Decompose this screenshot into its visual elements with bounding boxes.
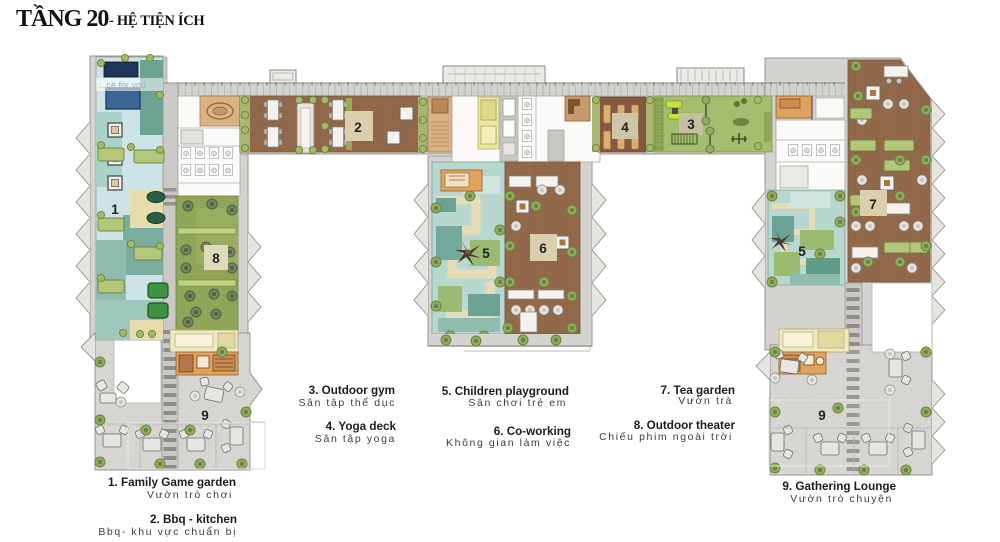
- svg-text:9: 9: [818, 408, 826, 423]
- svg-text:9. Gathering Lounge: 9. Gathering Lounge: [782, 480, 896, 493]
- svg-text:7: 7: [869, 197, 877, 212]
- svg-text:1. Family Game garden: 1. Family Game garden: [108, 476, 236, 489]
- svg-text:Chiếu phim ngoài trời: Chiếu phim ngoài trời: [599, 431, 733, 443]
- svg-text:Sân chơi trẻ em: Sân chơi trẻ em: [468, 397, 567, 409]
- svg-text:Không gian làm việc: Không gian làm việc: [446, 437, 571, 449]
- svg-text:2. Bbq - kitchen: 2. Bbq - kitchen: [150, 513, 237, 526]
- svg-text:4: 4: [621, 120, 629, 135]
- svg-text:Vườn trà: Vườn trà: [678, 395, 733, 407]
- svg-text:Sân tập yoga: Sân tập yoga: [315, 433, 396, 445]
- svg-text:1: 1: [111, 202, 119, 217]
- svg-text:9: 9: [201, 408, 209, 423]
- svg-text:3. Outdoor gym: 3. Outdoor gym: [309, 384, 395, 397]
- svg-text:6: 6: [539, 241, 547, 256]
- svg-text:- HỆ TIỆN ÍCH: - HỆ TIỆN ÍCH: [109, 12, 205, 29]
- svg-text:8: 8: [212, 251, 220, 266]
- svg-text:3: 3: [687, 117, 695, 132]
- svg-text:4. Yoga deck: 4. Yoga deck: [326, 420, 397, 433]
- svg-text:Sân tập thể dục: Sân tập thể dục: [298, 397, 396, 409]
- svg-text:5: 5: [482, 246, 490, 261]
- svg-text:TẦNG 20: TẦNG 20: [16, 5, 109, 32]
- svg-text:Vườn trò chơi: Vườn trò chơi: [147, 489, 233, 501]
- svg-text:Vườn trò chuyện: Vườn trò chuyện: [790, 493, 893, 505]
- svg-text:2: 2: [354, 120, 362, 135]
- svg-text:Bbq- khu vực chuẩn bị: Bbq- khu vực chuẩn bị: [98, 526, 237, 538]
- svg-text:5: 5: [798, 244, 806, 259]
- svg-text:...ce for you: ...ce for you: [99, 80, 146, 90]
